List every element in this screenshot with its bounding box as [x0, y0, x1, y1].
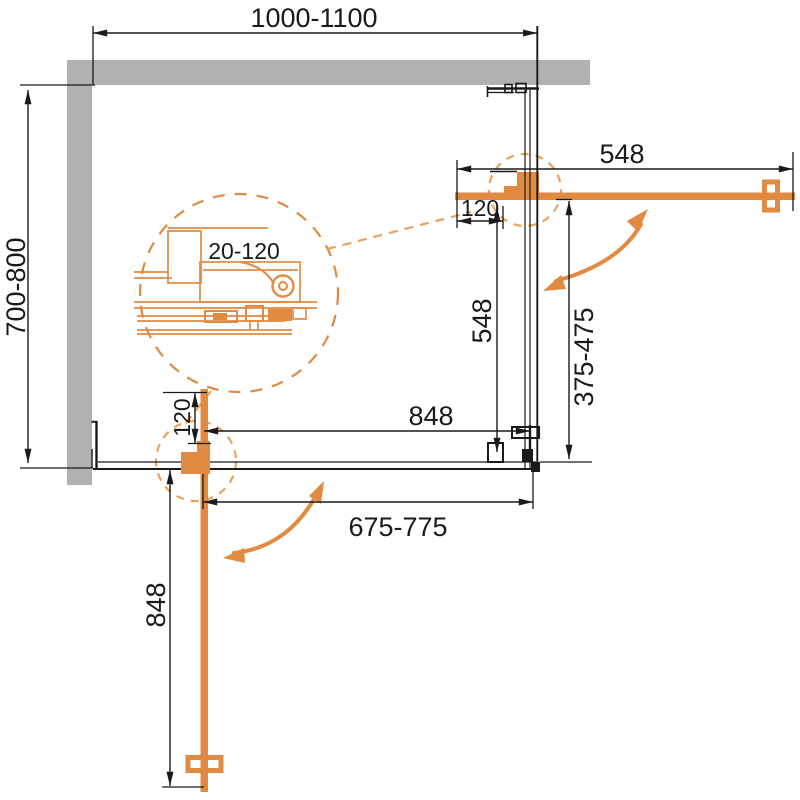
dim-top-door-offset: 120	[457, 195, 503, 229]
top-door-offset-label: 120	[461, 195, 499, 221]
dim-opening-width: 675-775	[203, 472, 533, 542]
top-swing-arrowhead-up	[627, 209, 648, 232]
side-panel-length-label: 548	[467, 298, 497, 343]
top-door	[455, 172, 795, 210]
detail-wall-profile	[168, 231, 201, 283]
dim-side-panel-length: 548	[467, 207, 497, 452]
adjustment-range-label: 20-120	[208, 238, 280, 264]
profile-detail: 20-120	[134, 228, 317, 334]
dim-bottom-door-length: 848	[141, 470, 204, 787]
enclosure-plan-svg: 20-120	[0, 0, 800, 800]
top-door-width-label: 548	[599, 139, 644, 169]
dim-opening-depth: 375-475	[540, 200, 599, 463]
fixed-structure	[92, 26, 541, 472]
bottom-swing-arrowhead-left	[223, 548, 245, 563]
callout-leader-top	[327, 212, 471, 249]
top-door-panel	[455, 193, 795, 201]
bottom-door-offset-label: 120	[169, 398, 195, 436]
dim-top-door-width: 548	[457, 139, 793, 228]
drawing-canvas: 20-120	[0, 0, 800, 800]
bottom-panel-width-label: 848	[408, 401, 453, 431]
detail-roller	[273, 276, 294, 297]
bottom-door-swing-arrow	[234, 490, 319, 553]
dimensions: 1000-1100 700-800 548 120 375-475 54	[1, 3, 793, 787]
left-wall	[67, 85, 92, 485]
detail-circle	[140, 194, 338, 392]
opening-width-label: 675-775	[348, 512, 447, 542]
bottom-door	[181, 389, 221, 792]
bottom-door-length-label: 848	[141, 582, 171, 627]
dim-bottom-panel-width: 848	[204, 401, 530, 431]
opening-depth-label: 375-475	[569, 307, 599, 406]
bottom-door-panel	[201, 389, 209, 792]
overall-width-label: 1000-1100	[250, 3, 377, 33]
overall-depth-label: 700-800	[1, 237, 31, 336]
top-wall	[67, 60, 590, 85]
